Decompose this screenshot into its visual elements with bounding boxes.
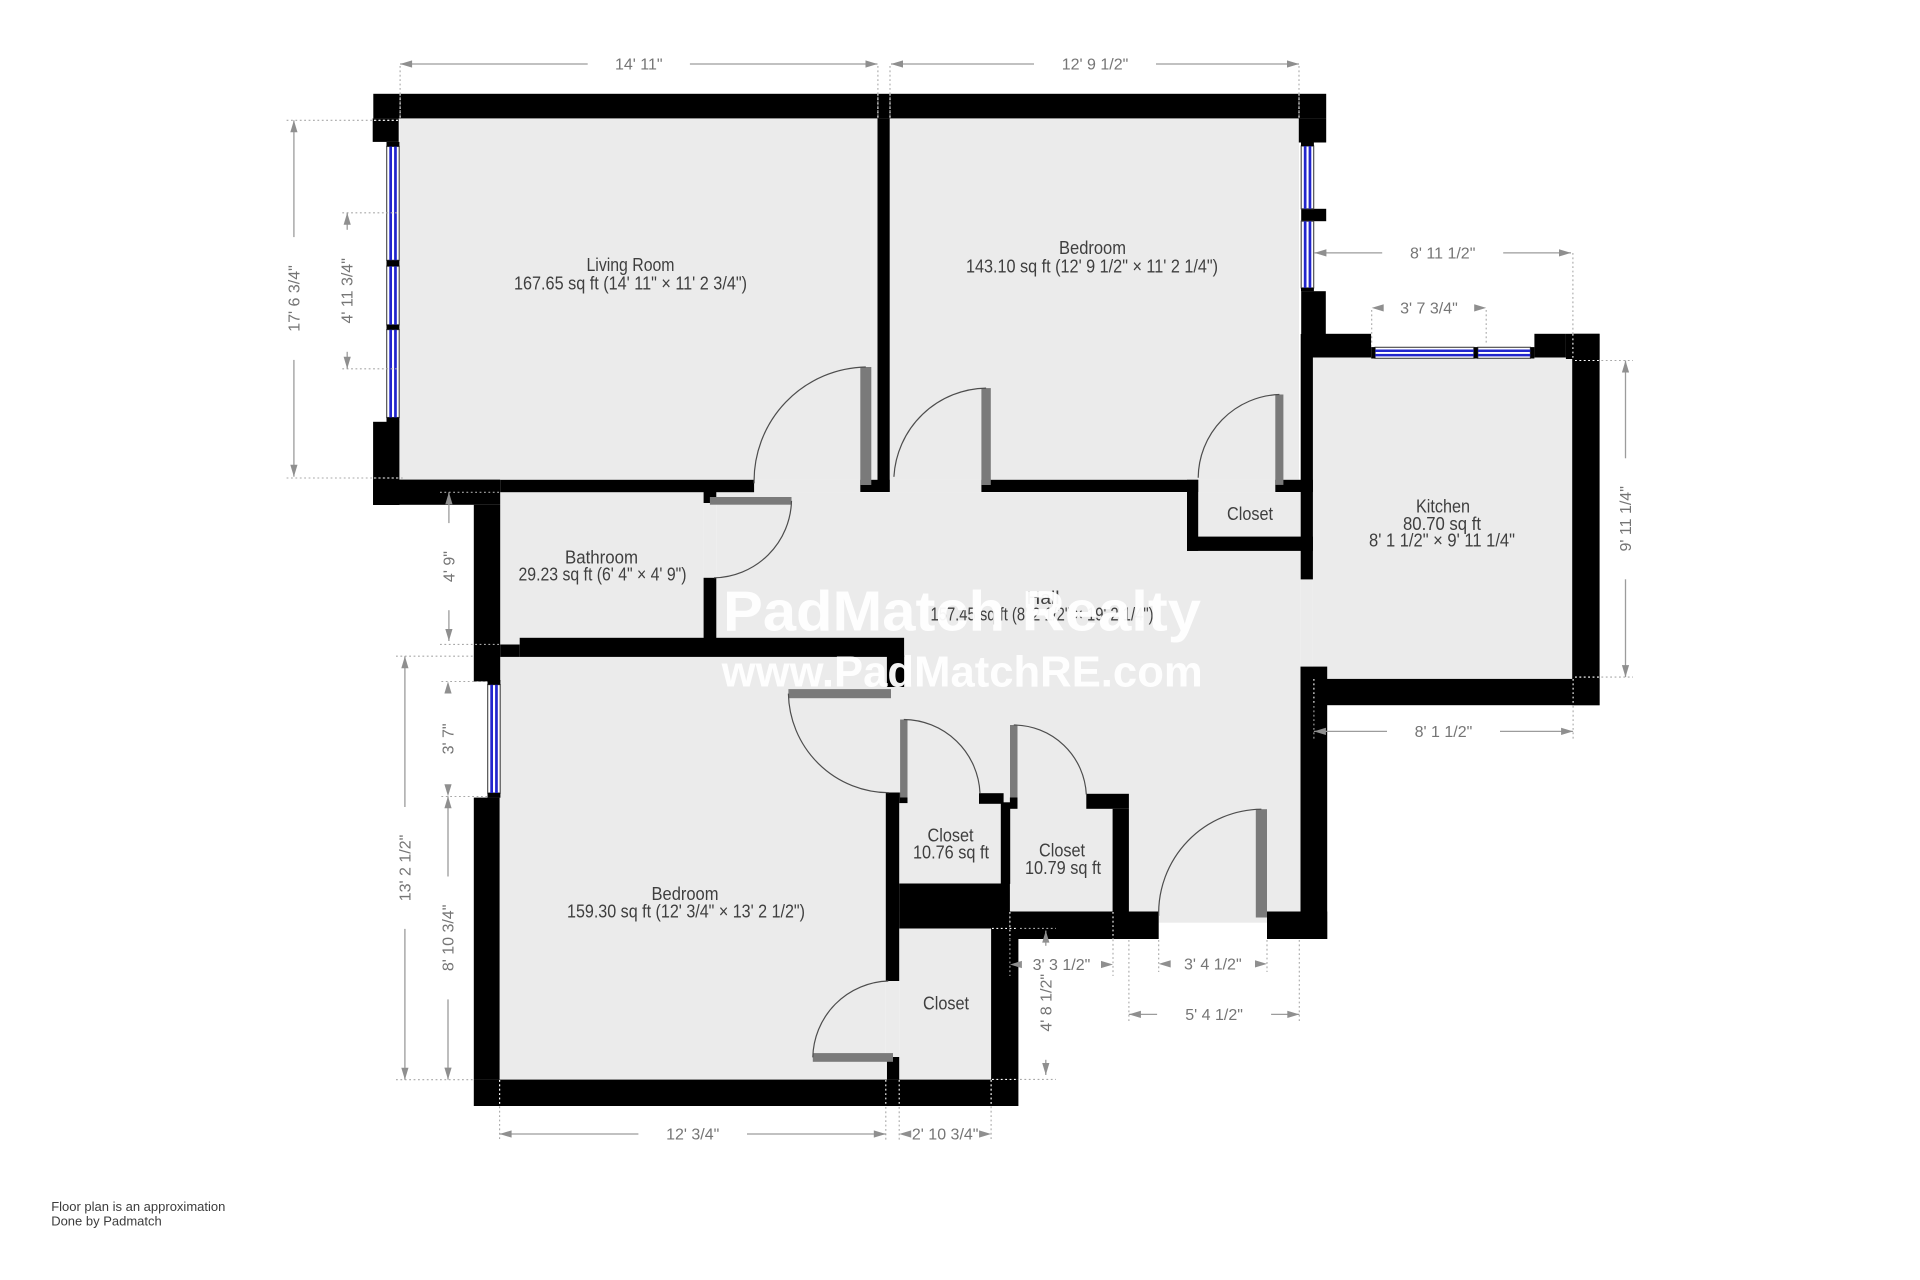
svg-text:8' 1 1/2" × 9' 11 1/4": 8' 1 1/2" × 9' 11 1/4" [1369, 530, 1515, 551]
svg-text:Closet: Closet [923, 993, 969, 1014]
svg-text:4' 8 1/2": 4' 8 1/2" [1038, 974, 1055, 1032]
svg-text:3' 4 1/2": 3' 4 1/2" [1184, 956, 1242, 973]
svg-text:14' 11": 14' 11" [615, 57, 663, 74]
svg-text:4' 11 3/4": 4' 11 3/4" [340, 258, 357, 323]
svg-text:143.10 sq ft (12' 9 1/2" × 11': 143.10 sq ft (12' 9 1/2" × 11' 2 1/4") [966, 256, 1218, 277]
svg-text:2' 10 3/4": 2' 10 3/4" [912, 1127, 979, 1144]
svg-text:13' 2 1/2": 13' 2 1/2" [397, 835, 414, 902]
svg-text:8' 1 1/2": 8' 1 1/2" [1415, 724, 1473, 741]
svg-text:Done by Padmatch: Done by Padmatch [51, 1213, 162, 1228]
svg-text:4' 9": 4' 9" [441, 551, 458, 582]
svg-text:9' 11 1/4": 9' 11 1/4" [1618, 486, 1635, 551]
svg-text:8' 10 3/4": 8' 10 3/4" [441, 905, 458, 972]
svg-text:8' 11 1/2": 8' 11 1/2" [1410, 245, 1475, 262]
svg-text:5' 4 1/2": 5' 4 1/2" [1185, 1007, 1243, 1024]
svg-text:3' 7 3/4": 3' 7 3/4" [1400, 300, 1458, 317]
svg-text:12' 3/4": 12' 3/4" [666, 1127, 719, 1144]
svg-text:www.PadMatchRE.com: www.PadMatchRE.com [721, 648, 1203, 696]
svg-text:3' 3 1/2": 3' 3 1/2" [1033, 957, 1091, 974]
svg-text:12' 9 1/2": 12' 9 1/2" [1062, 57, 1129, 74]
svg-text:3' 7": 3' 7" [441, 723, 458, 754]
svg-text:PadMatch Realty: PadMatch Realty [723, 580, 1201, 644]
svg-text:Closet: Closet [1227, 503, 1273, 524]
svg-text:17' 6 3/4": 17' 6 3/4" [286, 265, 303, 332]
svg-text:167.65 sq ft (14' 11" × 11' 2: 167.65 sq ft (14' 11" × 11' 2 3/4") [514, 273, 747, 294]
svg-text:29.23 sq ft (6' 4" × 4' 9"): 29.23 sq ft (6' 4" × 4' 9") [519, 564, 687, 585]
svg-text:159.30 sq ft (12' 3/4" × 13' 2: 159.30 sq ft (12' 3/4" × 13' 2 1/2") [567, 901, 805, 922]
svg-text:10.76 sq ft: 10.76 sq ft [913, 842, 989, 863]
svg-text:Floor plan is an approximation: Floor plan is an approximation [51, 1199, 225, 1214]
svg-text:10.79 sq ft: 10.79 sq ft [1025, 857, 1101, 878]
